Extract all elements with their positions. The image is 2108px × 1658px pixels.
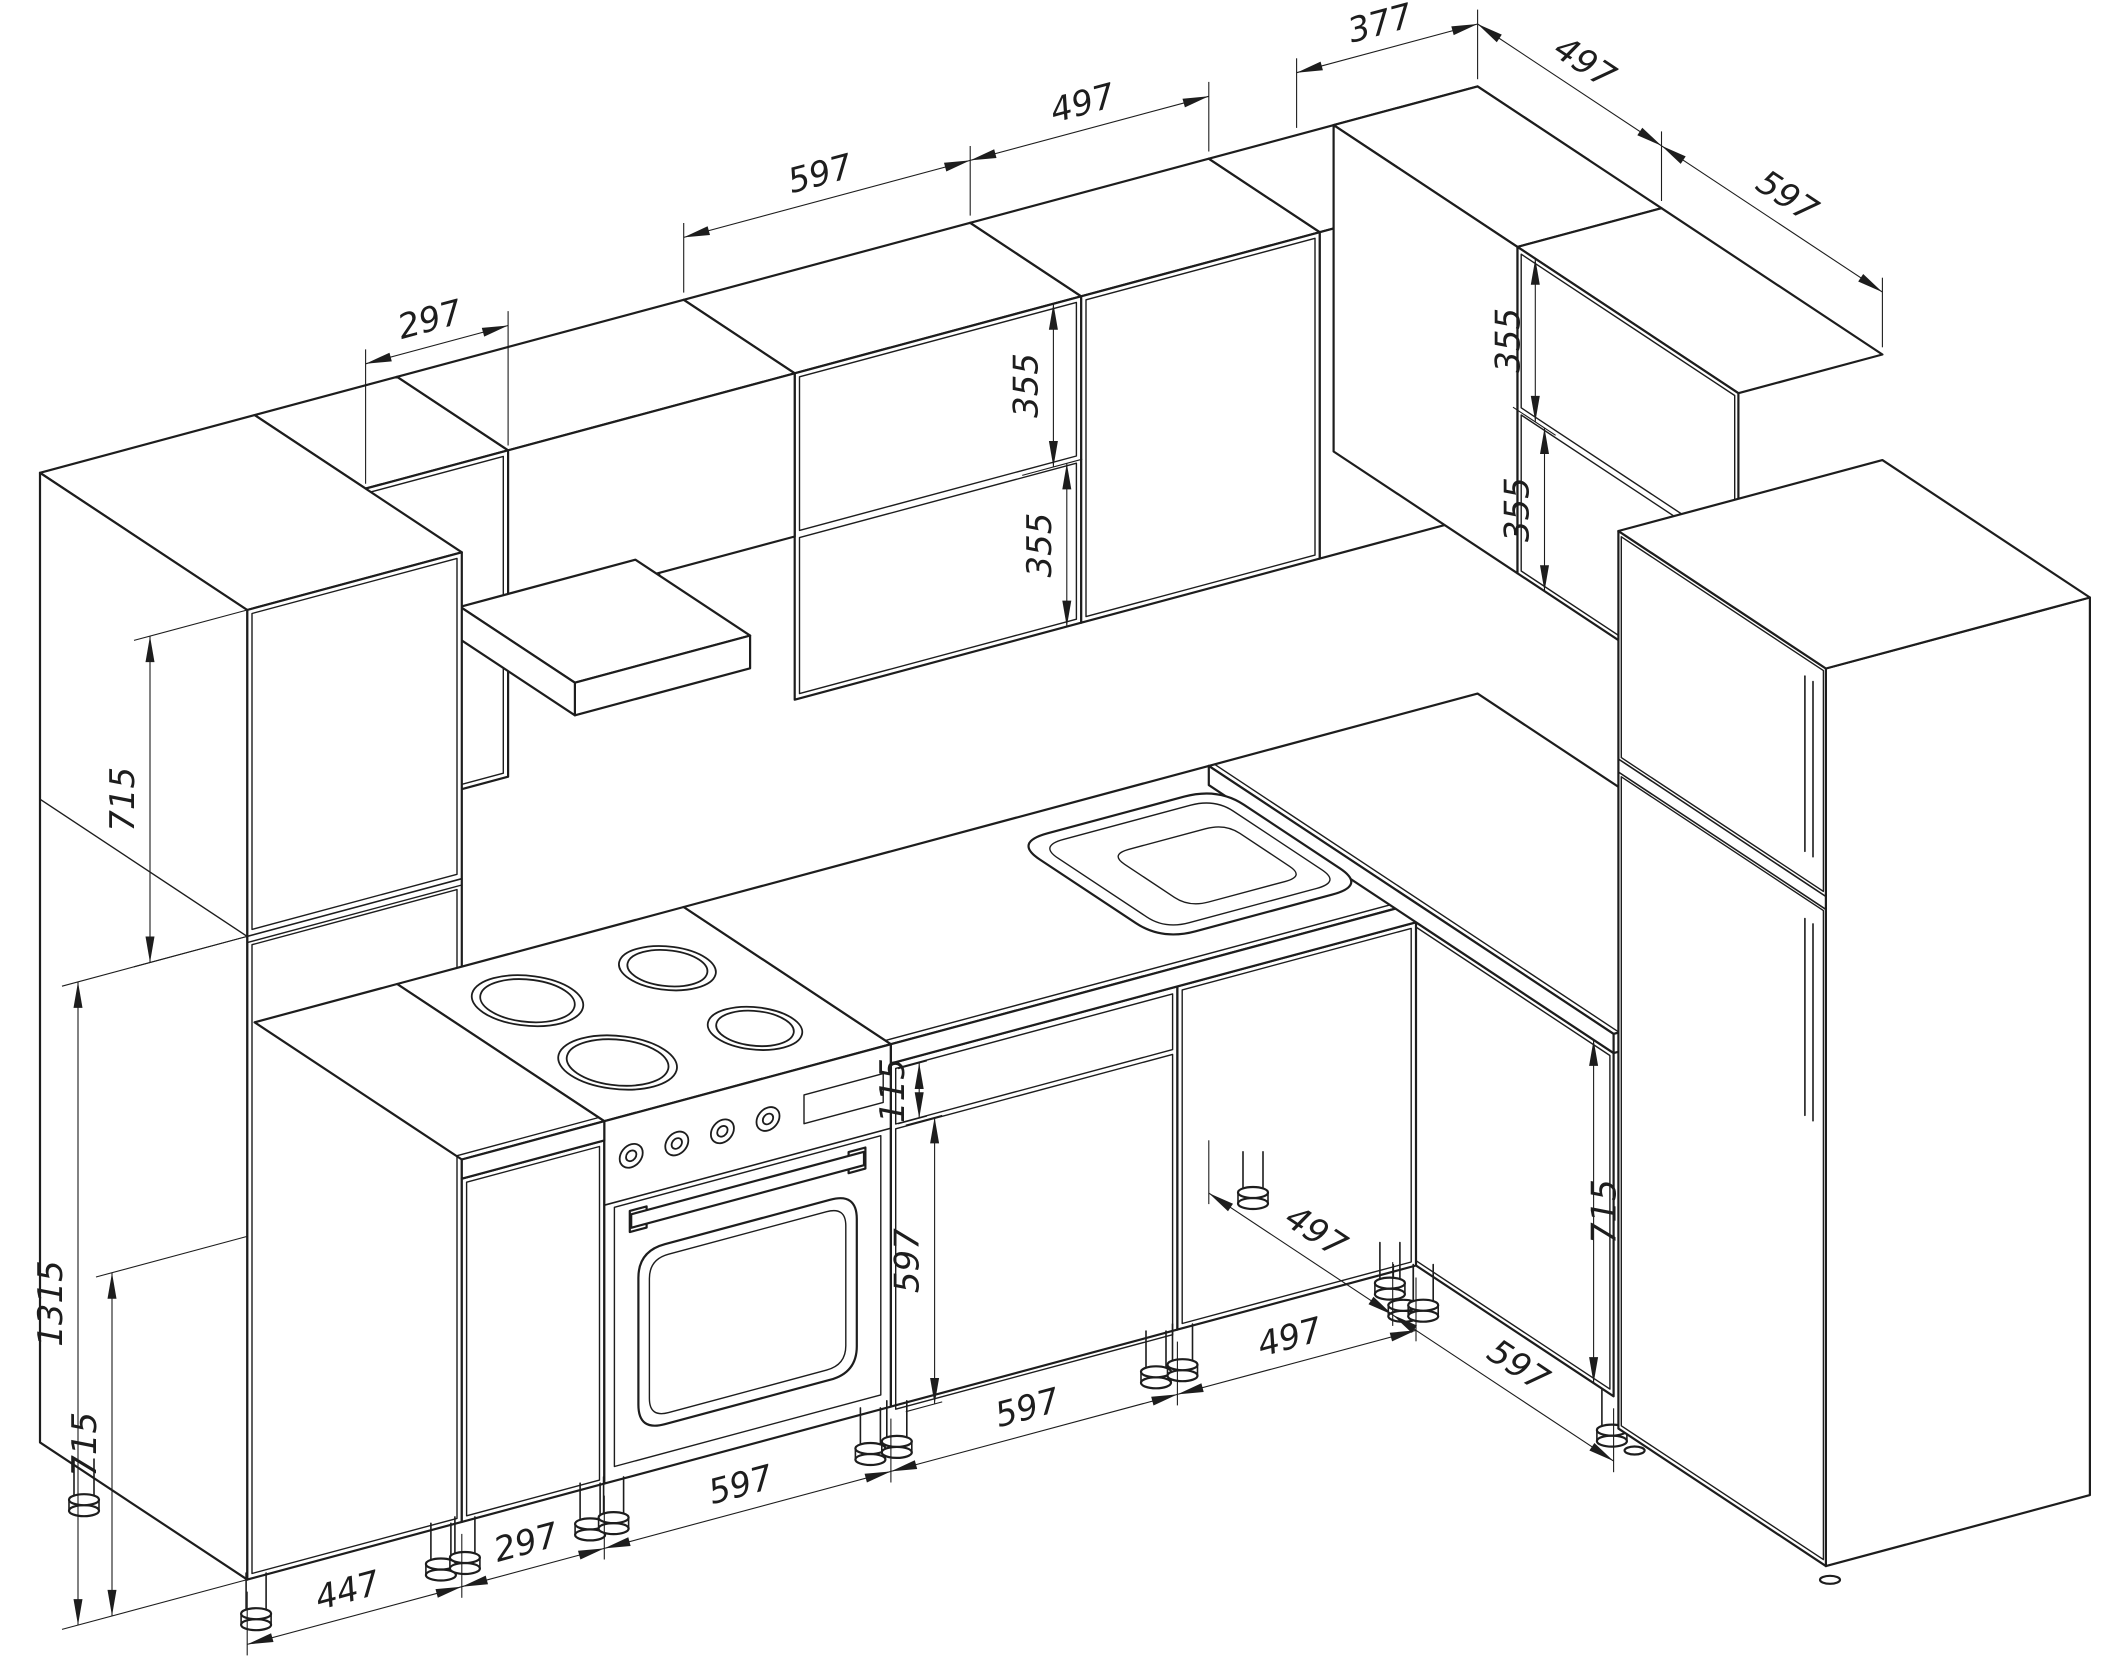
dimension-label: 355 [1498,477,1538,542]
dimension-label: 715 [1585,1179,1625,1244]
dimension-label: 355 [1006,353,1046,418]
dimension-label: 355 [1488,308,1528,373]
dimension-label: 355 [1020,513,1060,578]
drawing-canvas: 5974973774975972973553553553557151315715… [0,0,2108,1658]
base-cabinet-narrow [462,1140,605,1522]
dimension-label: 597 [1749,162,1826,231]
dimension-label: 1315 [31,1260,71,1347]
kitchen-technical-drawing: 5974973774975972973553553553557151315715… [0,0,2108,1658]
dimension-label: 115 [873,1058,913,1123]
dimension-label: 497 [1546,28,1623,97]
dimension-label: 715 [103,767,143,832]
dimension-label: 715 [65,1412,105,1477]
fridge [1618,460,2089,1584]
dimension-label: 597 [888,1228,928,1293]
